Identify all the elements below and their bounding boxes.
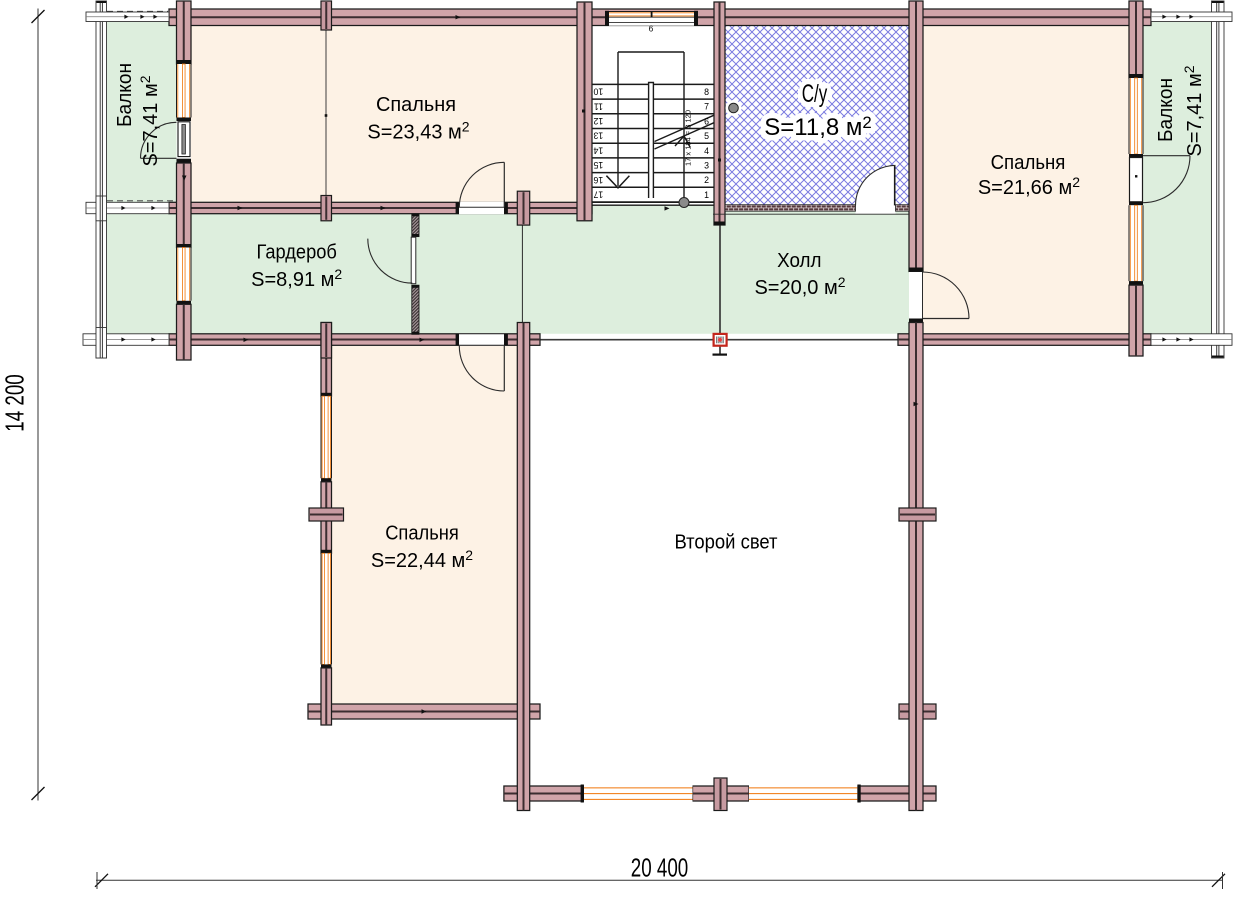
svg-text:8: 8 [704,87,709,97]
svg-text:Спальня: Спальня [991,152,1066,174]
svg-text:4: 4 [704,146,709,156]
svg-text:10: 10 [593,87,603,97]
svg-text:17: 17 [593,189,603,199]
svg-text:Второй свет: Второй свет [675,532,778,554]
svg-text:15: 15 [593,160,603,170]
svg-text:14 200: 14 200 [0,374,30,432]
svg-text:11: 11 [594,101,603,111]
svg-text:Спальня: Спальня [376,94,456,116]
svg-text:Холл: Холл [777,250,821,272]
svg-text:S=20,0 м2: S=20,0 м2 [754,274,845,299]
svg-text:16: 16 [593,175,603,185]
svg-text:S=8,91 м2: S=8,91 м2 [251,266,342,291]
svg-text:14: 14 [593,145,603,155]
svg-text:S=11,8 м2: S=11,8 м2 [764,113,871,141]
svg-text:20 400: 20 400 [631,853,689,883]
svg-text:17 x 184 = 3 120: 17 x 184 = 3 120 [684,110,693,166]
svg-text:С/у: С/у [802,80,828,108]
svg-text:12: 12 [593,116,603,126]
svg-text:13: 13 [593,131,603,141]
svg-text:S=7,41 м2: S=7,41 м2 [1181,65,1206,156]
svg-text:1: 1 [704,190,709,200]
svg-text:Спальня: Спальня [385,522,459,544]
svg-text:S=22,44 м2: S=22,44 м2 [371,547,473,572]
svg-text:9: 9 [648,24,653,33]
svg-text:Балкон: Балкон [1155,78,1177,142]
svg-text:Балкон: Балкон [114,63,136,127]
svg-text:S=21,66 м2: S=21,66 м2 [978,174,1080,199]
svg-text:5: 5 [704,131,709,141]
svg-text:6: 6 [704,116,709,126]
svg-text:2: 2 [704,175,709,185]
svg-text:S=23,43 м2: S=23,43 м2 [367,119,469,144]
svg-text:3: 3 [704,160,709,170]
svg-text:S=7,41 м2: S=7,41 м2 [137,75,162,166]
svg-text:Гардероб: Гардероб [257,242,337,264]
svg-text:7: 7 [704,102,709,112]
